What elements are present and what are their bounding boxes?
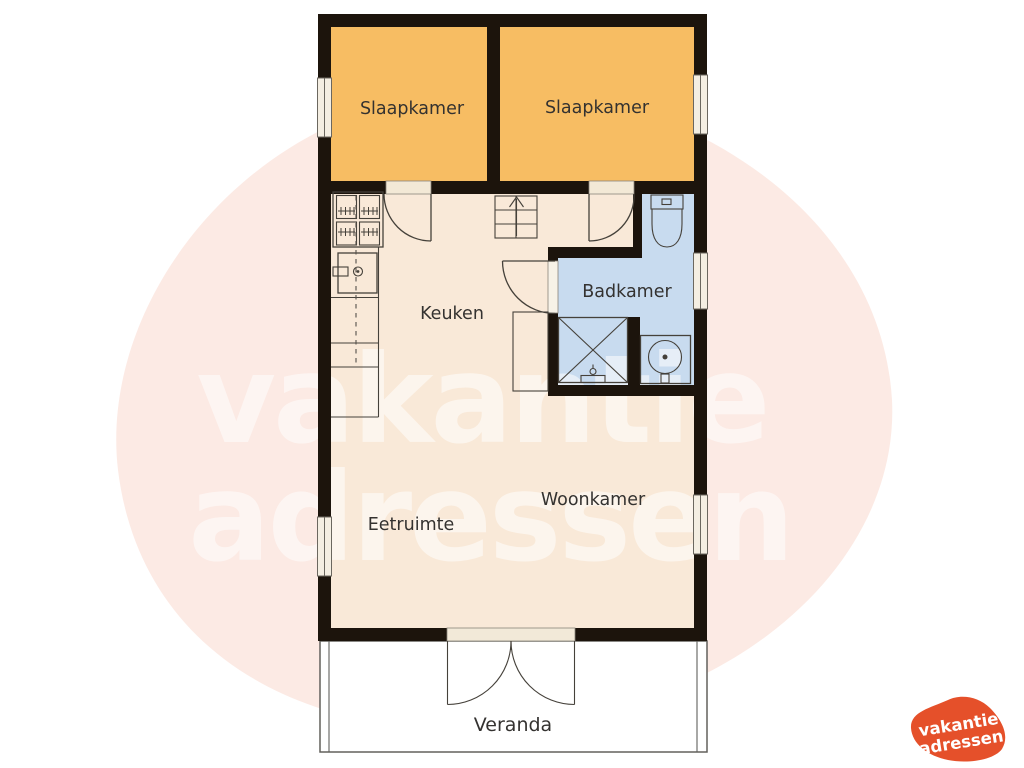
threshold-bedroom1-door bbox=[386, 181, 431, 194]
window-bedroom2-right bbox=[694, 75, 708, 134]
room-badkamer-toilet-nook bbox=[642, 188, 694, 252]
label-eetruimte: Eetruimte bbox=[368, 515, 455, 535]
wall-bathroom-top bbox=[548, 247, 642, 258]
threshold-bathroom-door bbox=[548, 261, 558, 313]
wall-outer-top bbox=[318, 14, 707, 27]
window-bedroom1-left bbox=[318, 78, 332, 137]
window-bathroom-right bbox=[694, 253, 708, 309]
floor-plan-svg: vakantie adressen bbox=[0, 0, 1024, 768]
threshold-bedroom2-door bbox=[589, 181, 634, 194]
threshold-veranda-door bbox=[447, 628, 575, 641]
floor-plan-page: vakantie adressen bbox=[0, 0, 1024, 768]
label-badkamer: Badkamer bbox=[582, 282, 672, 302]
window-living-right bbox=[694, 495, 708, 554]
label-veranda: Veranda bbox=[474, 714, 552, 736]
window-living-left bbox=[318, 517, 332, 576]
wall-shower-divider bbox=[628, 317, 640, 396]
label-slaapkamer-2: Slaapkamer bbox=[545, 98, 650, 118]
wall-bathroom-bottom bbox=[548, 385, 707, 396]
label-slaapkamer-1: Slaapkamer bbox=[360, 99, 465, 119]
wall-bedroom-divider bbox=[487, 14, 500, 181]
label-woonkamer: Woonkamer bbox=[541, 490, 646, 510]
label-keuken: Keuken bbox=[420, 304, 484, 324]
